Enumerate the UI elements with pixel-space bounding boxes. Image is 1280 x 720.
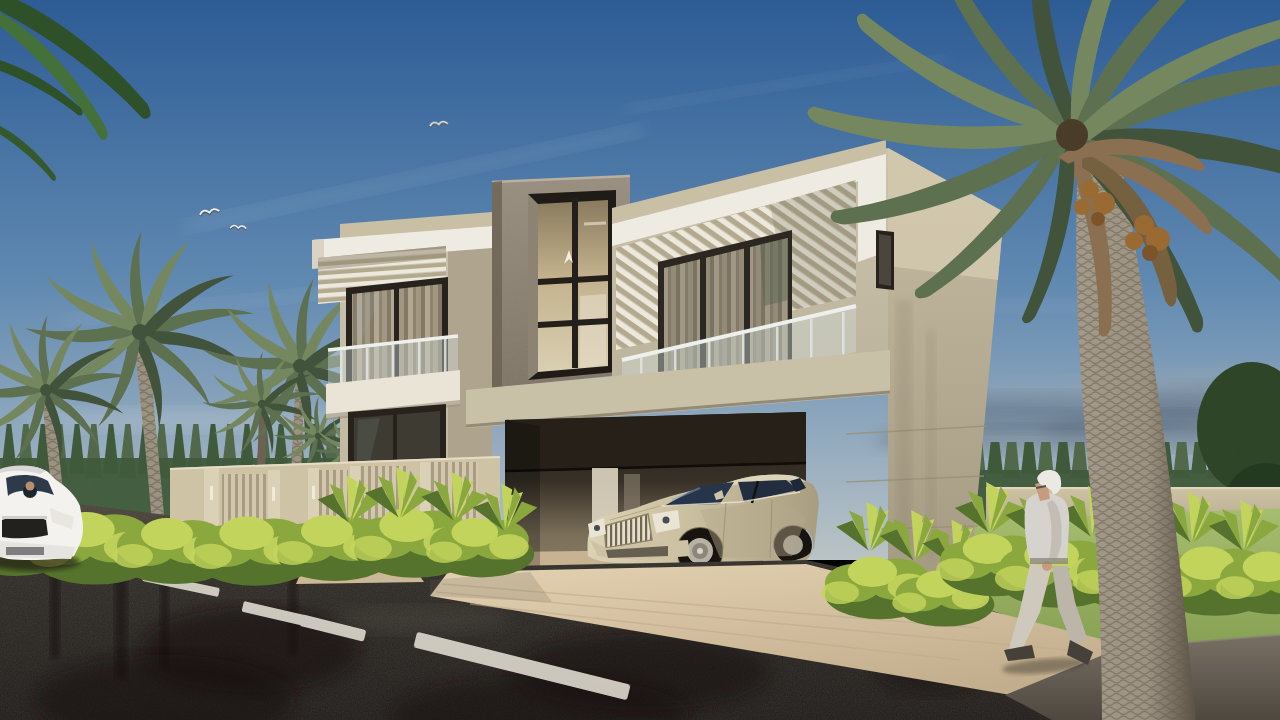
stain-streak (896, 300, 912, 550)
atrium-window (528, 190, 616, 380)
small-window (876, 230, 894, 290)
rendering-canvas (0, 0, 1280, 720)
central-tower (492, 176, 630, 388)
architectural-rendering (0, 0, 1280, 720)
tower-edge-shade (492, 181, 502, 388)
torso (1025, 492, 1070, 563)
grille (2, 516, 48, 538)
belt (1030, 558, 1068, 564)
glass-reflection (760, 238, 788, 306)
reveal-highlight (528, 194, 538, 380)
driver (26, 482, 35, 491)
interior-glow (580, 294, 606, 368)
